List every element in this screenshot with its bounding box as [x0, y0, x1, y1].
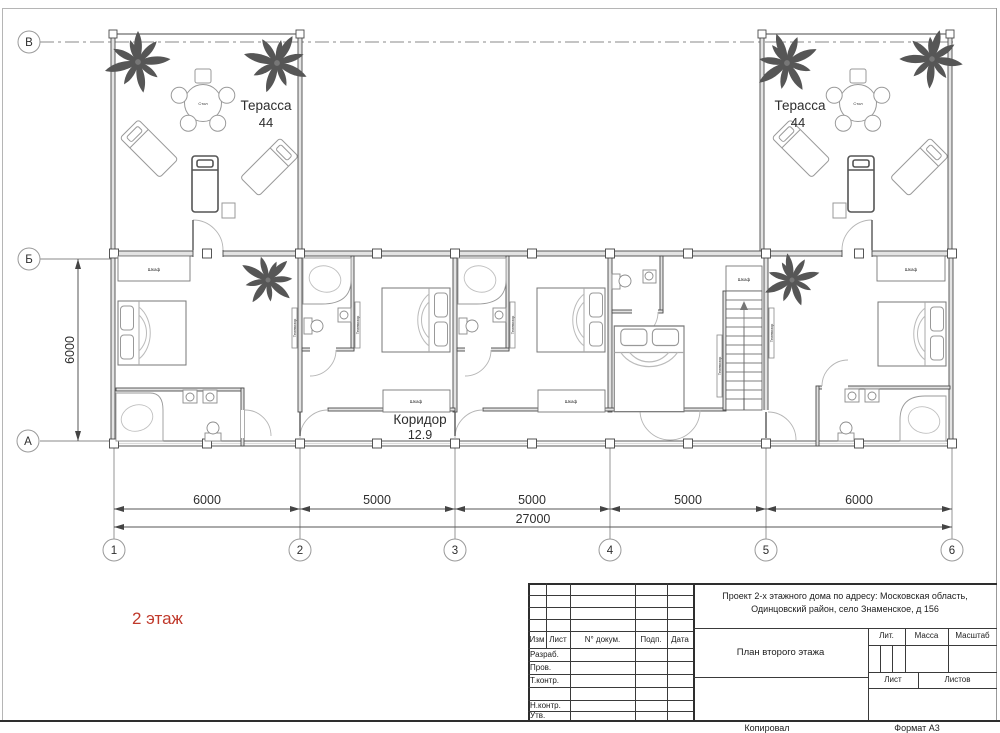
table-label: Стол [853, 101, 863, 106]
lounger-icon [890, 138, 948, 196]
tb-line [528, 674, 693, 675]
footer-format: Формат А3 [877, 723, 957, 733]
wardrobe-label: Шкаф [738, 277, 751, 282]
frame-bottom [0, 720, 1000, 722]
tb-line [528, 648, 693, 649]
terrace-furniture [120, 69, 948, 218]
lounger-icon [192, 156, 218, 212]
tb-col-izm: Изм [528, 636, 546, 644]
bathtubs [116, 258, 946, 441]
tb-line [868, 628, 869, 720]
wardrobe-label: Шкаф [905, 267, 918, 272]
lounger-icon [848, 156, 874, 212]
tv-label: Телевизор [293, 319, 297, 337]
tb-stamp-list: Лист [868, 676, 918, 684]
dim-span-3: 5000 [518, 493, 546, 507]
dim-total: 27000 [516, 512, 551, 526]
tb-line [528, 619, 693, 620]
drawing-sheet: В Б А 1 2 3 4 5 6 6000 5000 5000 5000 60… [0, 0, 1000, 733]
palm-icon [232, 19, 321, 106]
footer-copied: Копировал [727, 723, 807, 733]
frame-top [2, 8, 997, 9]
tb-row-tkontr: Т.контр. [530, 677, 559, 685]
axis-col-1: 1 [111, 545, 117, 557]
table-label: Стол [198, 101, 208, 106]
bed-icon [878, 302, 946, 366]
wardrobe-label: Шкаф [410, 399, 423, 404]
lounger-icon [120, 120, 178, 178]
tb-line [868, 672, 997, 673]
tb-row-prov: Пров. [530, 664, 551, 672]
tb-row-nkontr: Н.контр. [530, 702, 561, 710]
side-table-icon [833, 203, 846, 218]
tb-drawing-title: План второго этажа [693, 648, 868, 658]
dim-span-2: 5000 [363, 493, 391, 507]
tb-line [528, 607, 693, 608]
dim-span-1: 6000 [193, 493, 221, 507]
tb-line [868, 688, 997, 689]
axis-col-5: 5 [763, 545, 769, 557]
tv-label: Телевизор [511, 316, 515, 334]
palm-icon [744, 23, 828, 104]
tv-label: Телевизор [356, 316, 360, 334]
tv-cabinets [292, 302, 774, 397]
axis-row-v: В [25, 37, 33, 49]
tb-line [693, 628, 997, 629]
tb-line [528, 583, 997, 585]
tb-line [528, 711, 693, 712]
bed-icon [382, 288, 450, 352]
lounger-icon [240, 138, 298, 196]
tb-stamp-listov: Листов [918, 676, 997, 684]
terrace-left-name: Терасса [240, 98, 292, 113]
staircase [726, 291, 762, 410]
axis-col-3: 3 [452, 545, 458, 557]
tb-project-line1: Проект 2-х этажного дома по адресу: Моск… [693, 592, 997, 601]
palm-icon [893, 22, 970, 96]
tb-stamp-massa: Масса [905, 632, 948, 640]
palm-plants [104, 19, 970, 319]
tb-col-doc: N° докум. [570, 636, 635, 644]
tb-line [528, 687, 693, 688]
wall-posts [110, 249, 957, 448]
tv-label: Телевизор [770, 324, 774, 342]
tb-line [528, 661, 693, 662]
bed-icon [118, 301, 186, 365]
bed-icon [537, 288, 605, 352]
tb-col-list: Лист [546, 636, 570, 644]
floor-label: 2 этаж [132, 609, 183, 629]
wardrobe-label: Шкаф [148, 267, 161, 272]
corridor-area: 12.9 [408, 428, 432, 442]
axis-col-6: 6 [949, 545, 955, 557]
tb-stamp-lit: Лит. [868, 632, 905, 640]
tb-row-utv: Утв. [530, 712, 545, 720]
axis-col-4: 4 [607, 545, 614, 557]
tb-project-line2: Одинцовский район, село Знаменское, д 15… [693, 605, 997, 614]
tb-line [528, 631, 693, 632]
tb-stamp-masshtab: Масштаб [948, 632, 997, 640]
dim-height: 6000 [63, 336, 77, 364]
corridor-name: Коридор [393, 412, 446, 427]
terrace-right-name: Терасса [774, 98, 826, 113]
tb-col-podp: Подп. [635, 636, 667, 644]
bed-icon [614, 326, 684, 412]
tb-line [868, 645, 997, 646]
terrace-right-area: 44 [791, 115, 805, 130]
tb-col-data: Дата [667, 636, 693, 644]
tv-label: Телевизор [718, 357, 722, 375]
tb-row-razrab: Разраб. [530, 651, 559, 659]
tb-line [880, 645, 881, 672]
dim-span-5: 6000 [845, 493, 873, 507]
tb-line [892, 645, 893, 672]
axis-row-b: Б [25, 254, 33, 266]
axis-row-a: А [24, 436, 32, 448]
tb-line [528, 595, 693, 596]
wardrobe-label: Шкаф [565, 399, 578, 404]
terrace-left-area: 44 [259, 115, 273, 130]
tb-line [693, 677, 868, 678]
side-table-icon [222, 203, 235, 218]
axis-col-2: 2 [297, 545, 303, 557]
dim-span-4: 5000 [674, 493, 702, 507]
frame-left [2, 8, 3, 720]
